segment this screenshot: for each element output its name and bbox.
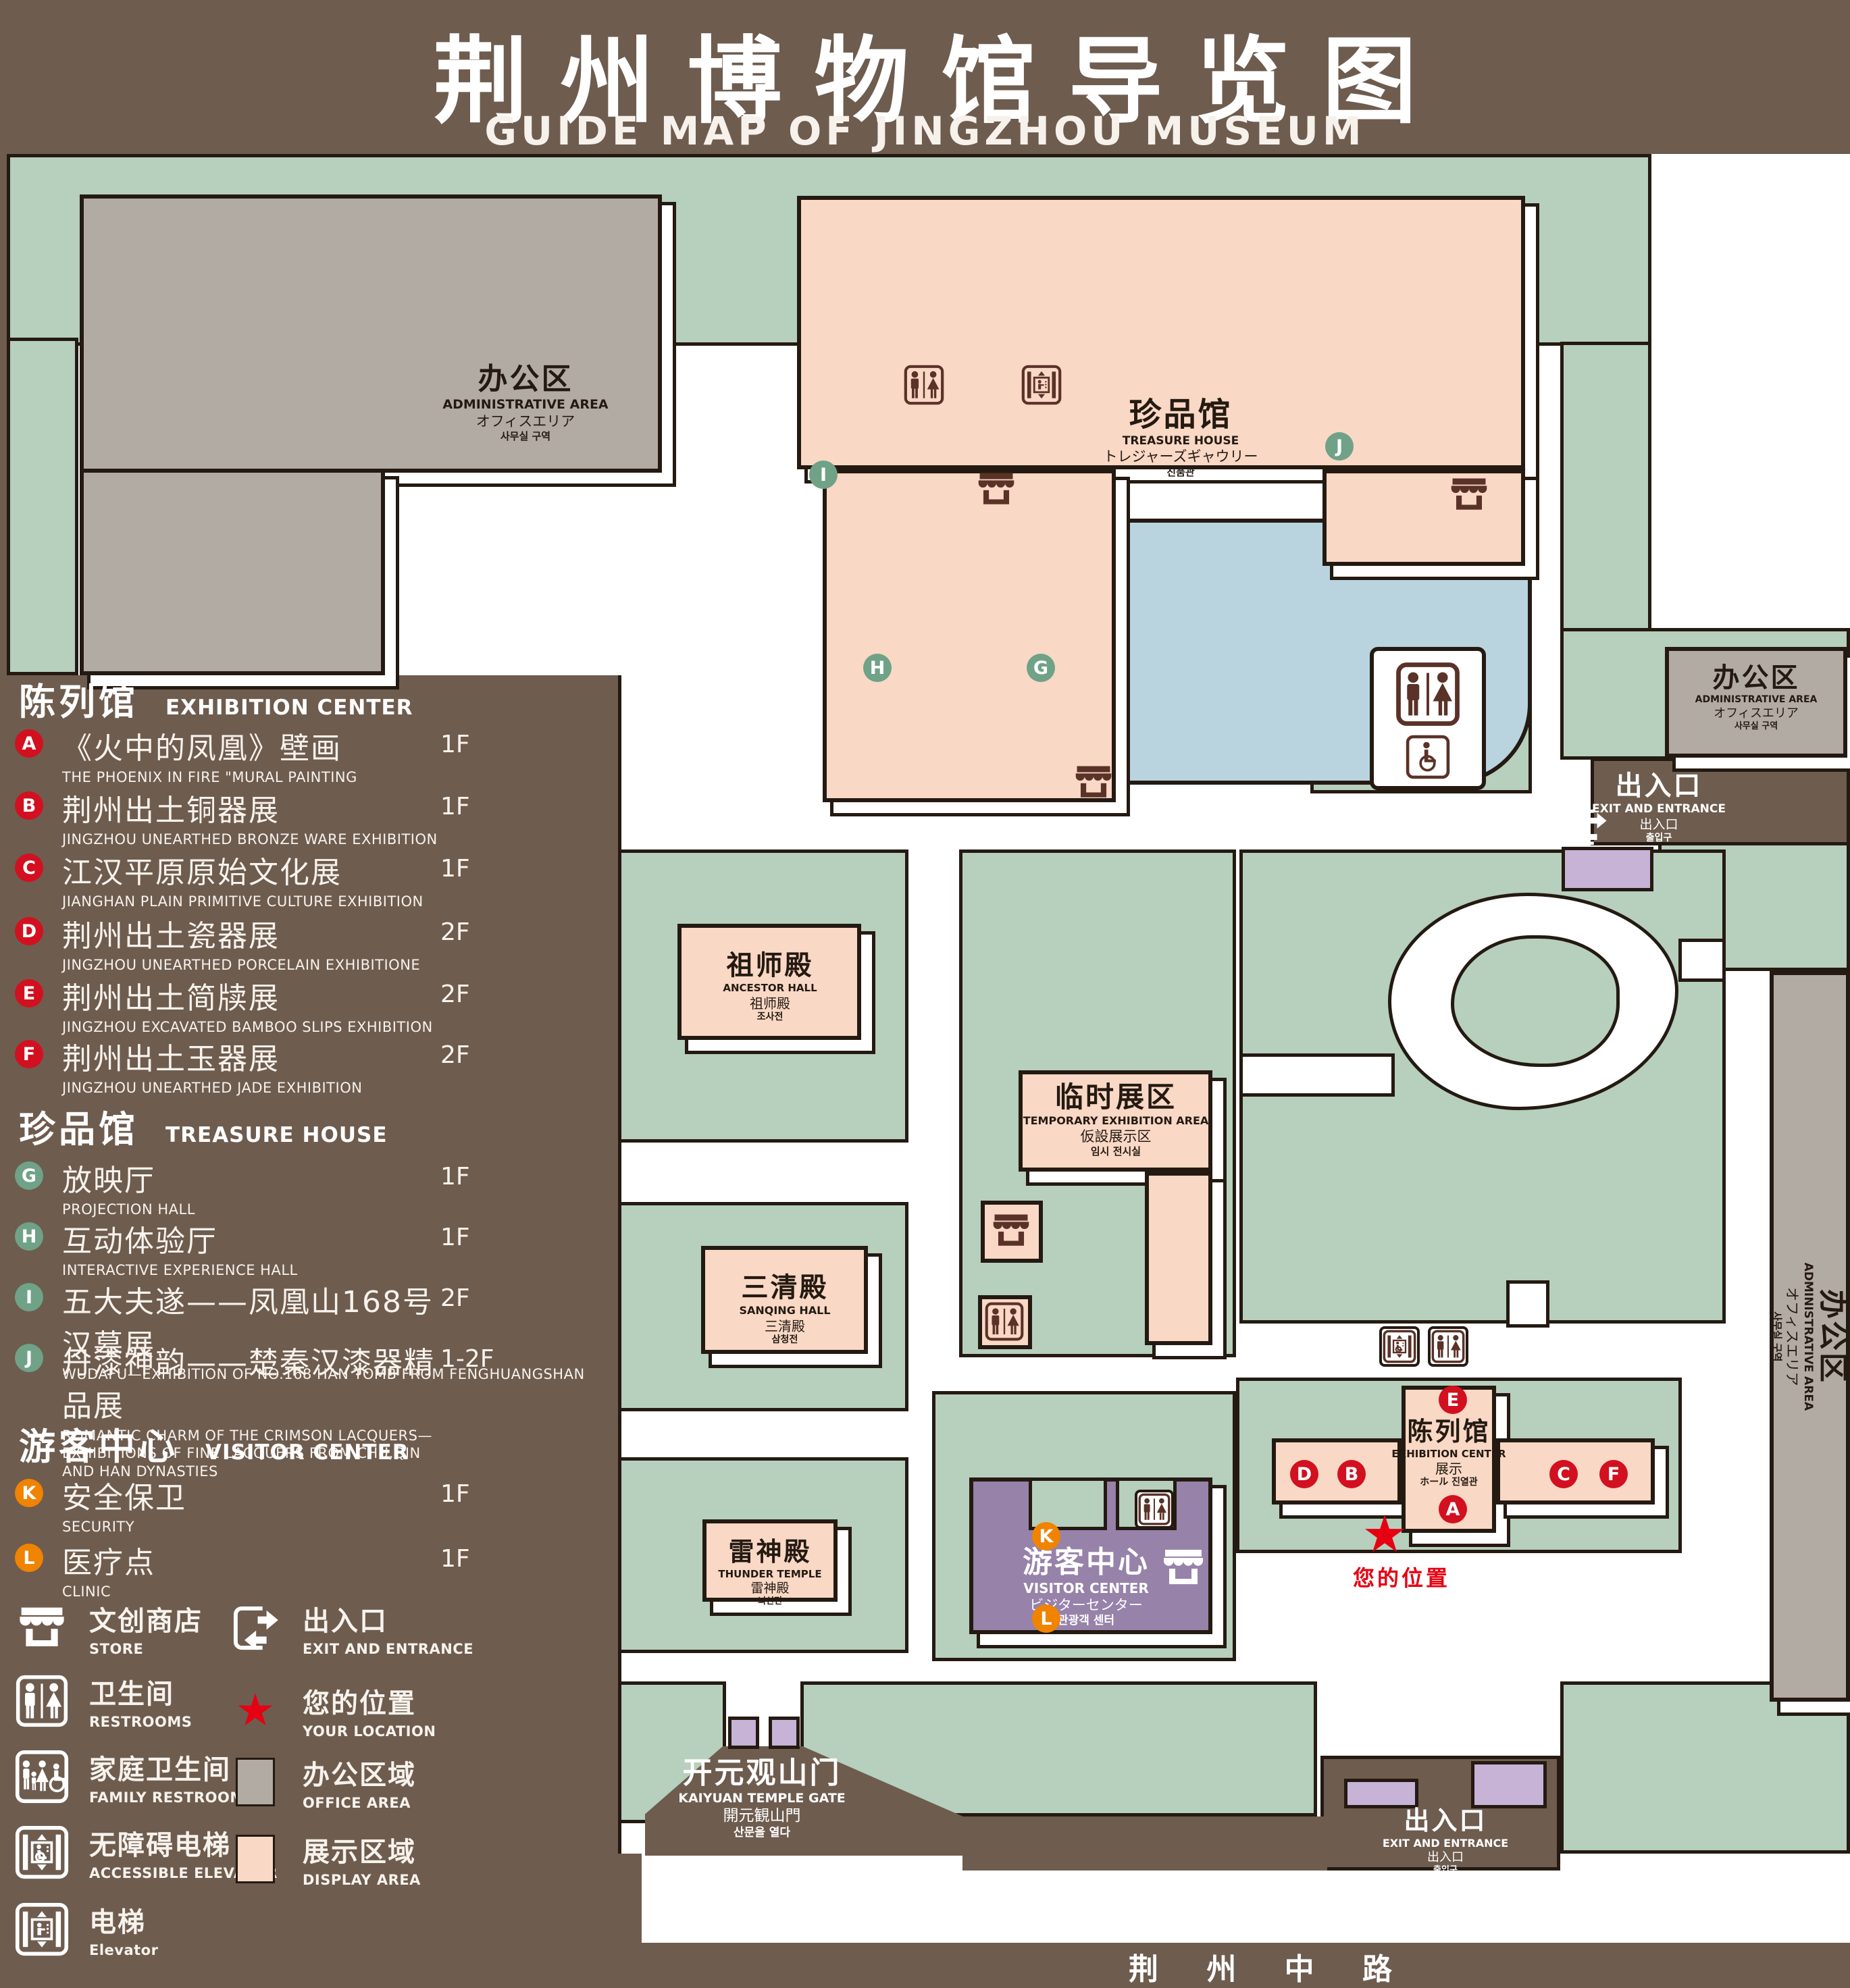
section-title-cn: 游客中心: [19, 1417, 178, 1470]
symbol-en: RESTROOMS: [89, 1714, 192, 1730]
admin-building-nw-lower: [80, 469, 385, 675]
map-marker-i: I: [809, 461, 838, 489]
symbol-en: STORE: [89, 1641, 203, 1657]
item-floor: 1F: [440, 731, 515, 758]
section-title-en: TREASURE HOUSE: [165, 1123, 388, 1147]
item-en: JIANGHAN PLAIN PRIMITIVE CULTURE EXHIBIT…: [62, 893, 440, 910]
section-title-cn: 陈列馆: [19, 672, 138, 725]
map-marker-b: B: [1337, 1460, 1366, 1488]
item-floor: 2F: [440, 1284, 515, 1312]
item-cn: 放映厅: [62, 1156, 440, 1199]
treasure-house-name-jp: トレジャーズギャウリー: [1104, 449, 1258, 465]
kaiyuan-gate-pillar-west: [728, 1717, 759, 1749]
thunder-temple-name: 雷神殿: [718, 1538, 821, 1567]
legend-item-b: B 荆州出土铜器展 JINGZHOU UNEARTHED BRONZE WARE…: [15, 786, 515, 847]
legend-symbol-exit: 出入口 EXIT AND ENTRANCE: [228, 1599, 473, 1657]
item-cn: 互动体验厅: [62, 1217, 440, 1260]
admin-east-label-wrap: 办公区 ADMINISTRATIVE AREA オフィスエリア 사무실 구역: [1770, 971, 1850, 1702]
display-area-swatch: [236, 1835, 275, 1883]
garden-path-east: [1678, 939, 1726, 982]
legend-marker-a: A: [15, 729, 43, 758]
thunder-temple-name-en: THUNDER TEMPLE: [718, 1569, 821, 1580]
store-icon: [18, 1604, 66, 1652]
symbol-en: Elevator: [89, 1942, 158, 1958]
exit-name-en: EXIT AND ENTRANCE: [1592, 803, 1726, 816]
accessible-elevator-icon: [1383, 1330, 1416, 1363]
temporary-exhibition-wing: [1145, 1172, 1212, 1345]
kaiyuan-gate-name-kr: 산문을 열다: [678, 1827, 846, 1839]
map-marker-f: F: [1599, 1460, 1628, 1488]
symbol-cn: 出入口: [303, 1599, 473, 1638]
treasure-house-east-wing: [1322, 469, 1525, 566]
section-title-cn: 珍品馆: [19, 1099, 138, 1153]
item-en: JINGZHOU UNEARTHED BRONZE WARE EXHIBITIO…: [62, 831, 440, 847]
item-floor: 2F: [440, 918, 515, 946]
legend-section-exhibition-center: 陈列馆 EXHIBITION CENTER: [19, 672, 413, 725]
exit-south-label: 出入口 EXIT AND ENTRANCE 出入口 출입구: [1383, 1807, 1508, 1875]
exit-name-kr: 출입구: [1592, 833, 1726, 843]
legend-symbol-family-restrooms: 家庭卫生间 FAMILY RESTROOMS: [15, 1748, 255, 1806]
item-en: JINGZHOU UNEARTHED JADE EXHIBITION: [62, 1080, 440, 1096]
legend-marker-l: L: [15, 1544, 43, 1572]
legend-item-a: A 《火中的凤凰》壁画 THE PHOENIX IN FIRE "MURAL P…: [15, 724, 515, 785]
section-title-en: EXHIBITION CENTER: [165, 696, 413, 720]
courtyard-east-strip: [1560, 342, 1651, 632]
your-location-star-icon: ★: [1362, 1509, 1408, 1560]
gate-block-south-west: [1344, 1779, 1418, 1808]
legend-item-k: K 安全保卫 SECURITY 1F: [15, 1473, 515, 1535]
admin-name-kr: 사무실 구역: [1695, 722, 1818, 731]
gate-block-ne: [1562, 847, 1653, 891]
admin-name-en: ADMINISTRATIVE AREA: [1801, 1262, 1814, 1410]
map-marker-k: K: [1032, 1522, 1060, 1550]
item-en: PROJECTION HALL: [62, 1201, 440, 1218]
visitor-center-notch-a: [1029, 1477, 1107, 1530]
accessible-restroom-icon: [1406, 735, 1450, 779]
legend-item-d: D 荆州出土瓷器展 JINGZHOU UNEARTHED PORCELAIN E…: [15, 912, 515, 973]
item-cn: 安全保卫: [62, 1473, 440, 1517]
item-cn: 江汉平原原始文化展: [62, 848, 440, 891]
legend-marker-d: D: [15, 917, 43, 945]
section-title-en: VISITOR CENTER: [205, 1440, 409, 1465]
location-star-icon: ★: [235, 1688, 275, 1733]
page-subtitle: GUIDE MAP OF JINGZHOU MUSEUM: [0, 108, 1850, 154]
item-en: SECURITY: [62, 1519, 440, 1535]
item-floor: 1F: [440, 1224, 515, 1251]
restrooms-icon: [1395, 662, 1460, 727]
thunder-temple-label: 雷神殿 THUNDER TEMPLE 雷神殿 뇌신전: [718, 1538, 821, 1606]
exit-name: 出入口: [1592, 771, 1726, 801]
thunder-temple-name-kr: 뇌신전: [718, 1597, 821, 1606]
treasure-house-name: 珍品馆: [1104, 397, 1258, 433]
exhibition-elevator-box: [1379, 1326, 1420, 1367]
map-marker-d: D: [1290, 1460, 1318, 1488]
item-floor: 1F: [440, 1545, 515, 1573]
sanqing-hall-name-kr: 삼청전: [739, 1335, 830, 1345]
legend-marker-j: J: [15, 1344, 43, 1372]
item-en: CLINIC: [62, 1584, 440, 1600]
exhibition-center-label: 陈列馆 EXHIBITION CENTER 展示 ホール 진열관: [1391, 1418, 1506, 1488]
visitor-center-name-en: VISITOR CENTER: [1023, 1581, 1150, 1596]
map-marker-j: J: [1325, 432, 1354, 461]
symbol-cn: 办公区域: [303, 1753, 416, 1792]
symbol-cn: 您的位置: [303, 1681, 436, 1721]
courtyard-west-strip: [7, 338, 78, 675]
visitor-center-name: 游客中心: [1023, 1546, 1150, 1579]
accessible-elevator-icon: [15, 1825, 69, 1879]
item-floor: 2F: [440, 1041, 515, 1069]
treasure-house-name-en: TREASURE HOUSE: [1104, 435, 1258, 448]
exhibition-center-name-line4: ホール 진열관: [1391, 1477, 1506, 1488]
exhibition-center-name: 陈列馆: [1391, 1418, 1506, 1446]
kaiyuan-gate-name-en: KAIYUAN TEMPLE GATE: [678, 1791, 846, 1806]
garden-path-west: [1239, 1053, 1395, 1097]
treasure-house-west-wing: [823, 469, 1116, 802]
store-icon: [1162, 1546, 1205, 1590]
kaiyuan-gate-label: 开元观山门 KAIYUAN TEMPLE GATE 開元観山門 산문을 열다: [678, 1757, 846, 1839]
admin-nw-label: 办公区 ADMINISTRATIVE AREA オフィスエリア 사무실 구역: [442, 363, 608, 442]
map-marker-l: L: [1032, 1604, 1060, 1633]
item-cn: 荆州出土瓷器展: [62, 912, 440, 955]
ancestor-hall-name-kr: 조사전: [723, 1012, 817, 1022]
symbol-cn: 卫生间: [89, 1672, 192, 1711]
legend-symbol-restrooms: 卫生间 RESTROOMS: [15, 1672, 192, 1730]
ancestor-hall-name-jp: 祖师殿: [723, 996, 817, 1011]
admin-name-en: ADMINISTRATIVE AREA: [442, 398, 608, 412]
sanqing-hall-name-en: SANQING HALL: [739, 1305, 830, 1317]
guide-map-page: { "title": {"cn": "荆州博物馆导览图", "en": "GUI…: [0, 0, 1850, 1977]
map-marker-c: C: [1549, 1460, 1578, 1488]
exit-icon: [230, 1602, 281, 1654]
exhibition-restroom-box: [1428, 1326, 1468, 1367]
exhibition-center-name-en: EXHIBITION CENTER: [1391, 1448, 1506, 1460]
restrooms-icon: [1138, 1493, 1171, 1525]
symbol-cn: 电梯: [89, 1900, 158, 1939]
ancestor-hall-name: 祖师殿: [723, 951, 817, 980]
legend-marker-i: I: [15, 1283, 43, 1311]
item-floor: 1F: [440, 855, 515, 883]
restrooms-icon: [904, 365, 944, 405]
treasure-house-name-kr: 진품관: [1104, 467, 1258, 478]
temporary-area-name-en: TEMPORARY EXHIBITION AREA: [1023, 1115, 1209, 1127]
item-en: JINGZHOU UNEARTHED PORCELAIN EXHIBITIONE: [62, 957, 440, 973]
legend-marker-g: G: [15, 1161, 43, 1190]
restrooms-icon: [16, 1675, 68, 1727]
family-restrooms-icon: [15, 1750, 69, 1804]
item-cn: 医疗点: [62, 1538, 440, 1581]
restrooms-icon: [1431, 1330, 1465, 1363]
symbol-en: YOUR LOCATION: [303, 1723, 436, 1739]
legend-marker-b: B: [15, 791, 43, 820]
exit-name-kr: 출입구: [1383, 1866, 1508, 1875]
legend-item-c: C 江汉平原原始文化展 JIANGHAN PLAIN PRIMITIVE CUL…: [15, 848, 515, 910]
sanqing-hall-label: 三清殿 SANQING HALL 三清殿 삼청전: [739, 1273, 830, 1345]
admin-name-kr: 사무실 구역: [442, 431, 608, 442]
legend-marker-f: F: [15, 1040, 43, 1068]
item-cn: 荆州出土铜器展: [62, 786, 440, 829]
admin-name-en: ADMINISTRATIVE AREA: [1695, 695, 1818, 705]
legend-marker-e: E: [15, 979, 43, 1008]
admin-name: 办公区: [1695, 663, 1818, 693]
admin-name-jp: オフィスエリア: [1695, 707, 1818, 721]
map-marker-h: H: [863, 654, 892, 682]
symbol-cn: 展示区域: [303, 1830, 421, 1869]
legend-symbol-elevator: 电梯 Elevator: [15, 1900, 158, 1958]
ancestor-hall-label: 祖师殿 ANCESTOR HALL 祖师殿 조사전: [723, 951, 817, 1022]
temporary-area-name-jp: 仮設展示区: [1023, 1129, 1209, 1145]
gate-block-south-east: [1471, 1761, 1547, 1808]
symbol-en: DISPLAY AREA: [303, 1872, 421, 1888]
admin-name: 办公区: [1816, 1262, 1848, 1410]
admin-name-jp: オフィスエリア: [442, 414, 608, 429]
exit-name-jp: 出入口: [1383, 1851, 1508, 1864]
kaiyuan-gate-pillar-east: [769, 1717, 800, 1749]
sanqing-hall-name: 三清殿: [739, 1273, 830, 1303]
legend-symbol-your-location: ★ 您的位置 YOUR LOCATION: [228, 1681, 436, 1739]
ancestor-hall-name-en: ANCESTOR HALL: [723, 983, 817, 994]
legend-item-f: F 荆州出土玉器展 JINGZHOU UNEARTHED JADE EXHIBI…: [15, 1035, 515, 1096]
office-area-swatch: [236, 1758, 275, 1806]
symbol-cn: 文创商店: [89, 1599, 203, 1638]
store-icon: [1074, 763, 1113, 802]
item-cn: 荆州出土玉器展: [62, 1035, 440, 1078]
item-cn: 丹漆神韵——楚秦汉漆器精品展: [62, 1338, 440, 1425]
legend-marker-k: K: [15, 1479, 43, 1507]
map-marker-a: A: [1439, 1495, 1467, 1523]
admin-name-jp: オフィスエリア: [1784, 1262, 1799, 1410]
elevator-icon: [15, 1902, 69, 1956]
store-icon: [1449, 475, 1489, 515]
item-floor: 1F: [440, 793, 515, 820]
legend-item-e: E 荆州出土简牍展 JINGZHOU EXCAVATED BAMBOO SLIP…: [15, 974, 515, 1035]
sanqing-hall-name-jp: 三清殿: [739, 1319, 830, 1334]
exit-name-en: EXIT AND ENTRANCE: [1383, 1837, 1508, 1850]
exit-name-jp: 出入口: [1592, 818, 1726, 832]
legend-section-visitor-center: 游客中心 VISITOR CENTER: [19, 1417, 409, 1470]
exhibition-center-name-line3: 展示: [1391, 1461, 1506, 1476]
item-en: INTERACTIVE EXPERIENCE HALL: [62, 1262, 440, 1278]
legend-symbol-office-area: 办公区域 OFFICE AREA: [228, 1753, 416, 1811]
garden-path-south: [1506, 1280, 1549, 1328]
admin-name-kr: 사무실 구역: [1771, 1262, 1782, 1410]
symbol-en: OFFICE AREA: [303, 1795, 416, 1811]
your-location-text: 您的位置: [1353, 1561, 1450, 1592]
road-band: [962, 1816, 1327, 1871]
exit-name: 出入口: [1383, 1807, 1508, 1835]
visitor-center-restroom-box: [1135, 1490, 1174, 1529]
restrooms-icon: [985, 1302, 1024, 1341]
store-icon: [977, 470, 1016, 509]
admin-ne-label: 办公区 ADMINISTRATIVE AREA オフィスエリア 사무실 구역: [1695, 663, 1818, 731]
kaiyuan-gate-name: 开元观山门: [678, 1757, 846, 1789]
legend-symbol-store: 文创商店 STORE: [15, 1599, 203, 1657]
temporary-area-name-kr: 임시 전시실: [1023, 1146, 1209, 1157]
garden-island: [1451, 935, 1620, 1067]
exit-ne-label: 出入口 EXIT AND ENTRANCE 出入口 출입구: [1592, 771, 1726, 843]
store-icon: [992, 1211, 1031, 1251]
symbol-en: EXIT AND ENTRANCE: [303, 1641, 473, 1657]
legend-marker-h: H: [15, 1222, 43, 1251]
thunder-temple-name-jp: 雷神殿: [718, 1581, 821, 1596]
map-marker-g: G: [1027, 654, 1055, 682]
courtyard-south-c: [1560, 1681, 1850, 1854]
treasure-house-label: 珍品馆 TREASURE HOUSE トレジャーズギャウリー 진품관: [1104, 397, 1258, 477]
admin-name: 办公区: [442, 363, 608, 396]
legend-item-l: L 医疗点 CLINIC 1F: [15, 1538, 515, 1600]
item-floor: 1-2F: [440, 1345, 515, 1373]
item-cn: 《火中的凤凰》壁画: [62, 724, 440, 767]
item-en: JINGZHOU EXCAVATED BAMBOO SLIPS EXHIBITI…: [62, 1019, 440, 1035]
item-floor: 1F: [440, 1163, 515, 1191]
road-name: 荆 州 中 路: [1129, 1945, 1411, 1988]
legend-item-g: G 放映厅 PROJECTION HALL 1F: [15, 1156, 515, 1218]
admin-east-label: 办公区 ADMINISTRATIVE AREA オフィスエリア 사무실 구역: [1771, 1262, 1849, 1410]
map-marker-e: E: [1439, 1386, 1467, 1414]
kaiyuan-gate-name-jp: 開元観山門: [678, 1808, 846, 1825]
item-floor: 2F: [440, 980, 515, 1008]
temporary-area-label: 临时展区 TEMPORARY EXHIBITION AREA 仮設展示区 임시 …: [1023, 1082, 1209, 1157]
elevator-icon: [1021, 365, 1062, 405]
item-cn: 荆州出土简牍展: [62, 974, 440, 1017]
legend-marker-c: C: [15, 854, 43, 882]
legend-item-h: H 互动体验厅 INTERACTIVE EXPERIENCE HALL 1F: [15, 1217, 515, 1278]
legend-section-treasure-house: 珍品馆 TREASURE HOUSE: [19, 1099, 388, 1153]
legend-symbol-display-area: 展示区域 DISPLAY AREA: [228, 1830, 421, 1888]
item-en: THE PHOENIX IN FIRE "MURAL PAINTING: [62, 769, 440, 785]
temporary-area-name: 临时展区: [1023, 1082, 1209, 1113]
item-floor: 1F: [440, 1480, 515, 1508]
